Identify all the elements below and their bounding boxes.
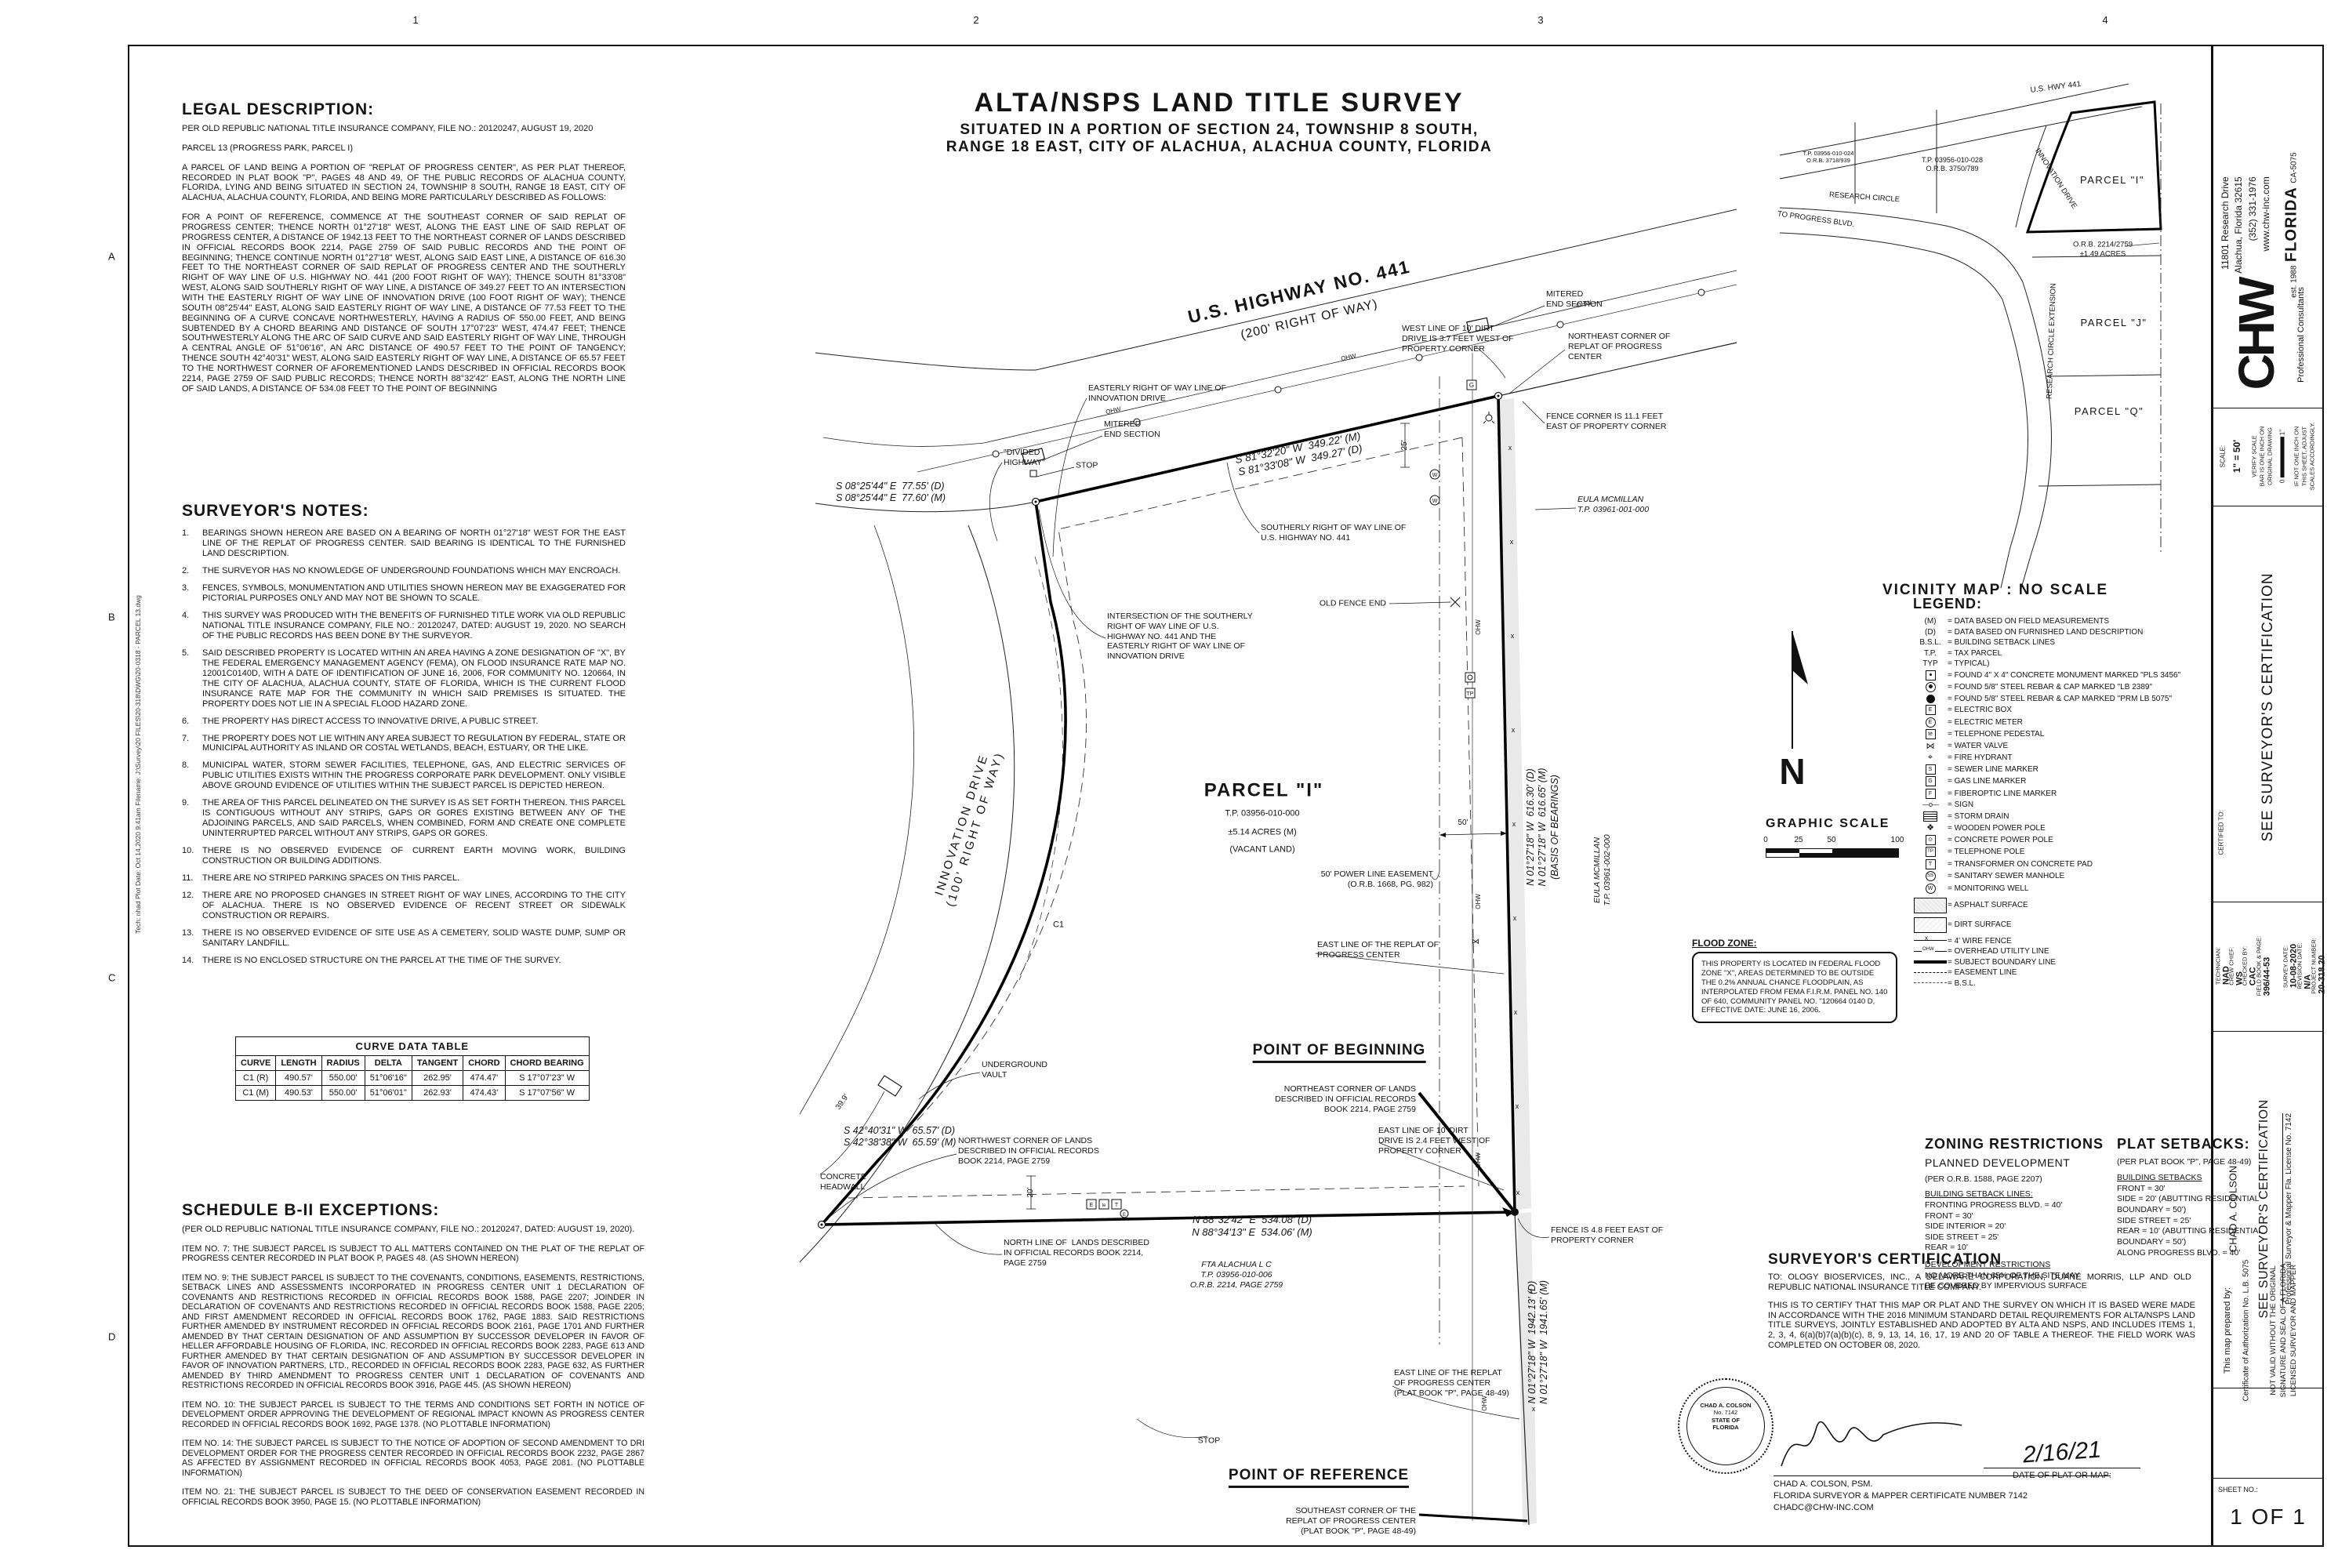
- curve-col-header: CHORD BEARING: [505, 1056, 589, 1071]
- map-label: NORTHEAST CORNER OF LANDS DESCRIBED IN O…: [1275, 1084, 1416, 1114]
- grid-letter: A: [108, 251, 115, 263]
- legend-item: S= SEWER LINE MARKER: [1913, 764, 2209, 775]
- legend-item: T= TRANSFORMER ON CONCRETE PAD: [1913, 859, 2209, 869]
- map-label: EAST LINE OF THE REPLAT OF PROGRESS CENT…: [1394, 1368, 1509, 1398]
- grid-numbers: 1234: [0, 14, 2338, 38]
- legend-item: W= MONITORING WELL: [1913, 884, 2209, 894]
- legend-item: B.S.L.= BUILDING SETBACK LINES: [1913, 638, 2209, 647]
- fiber-icon: F: [1913, 789, 1948, 799]
- map-label: INNOVATION DRIVE (100' RIGHT OF WAY): [931, 746, 1008, 909]
- zoning-setback-line: FRONT = 30': [1925, 1211, 2109, 1222]
- rebar2-icon: [1913, 695, 1948, 703]
- map-label: PARCEL "I": [1204, 779, 1324, 801]
- map-label: FENCE CORNER IS 11.1 FEET EAST OF PROPER…: [1546, 412, 1666, 432]
- surveyors-certification: SURVEYOR'S CERTIFICATION TO: OLOGY BIOSE…: [1768, 1251, 2209, 1351]
- gas-icon: G: [1913, 776, 1948, 786]
- map-label: ±5.14 ACRES (M): [1228, 827, 1296, 837]
- surveyor-note: 14.THERE IS NO ENCLOSED STRUCTURE ON THE…: [182, 956, 626, 966]
- north-arrow: N: [1773, 623, 1821, 792]
- legend-item: ❖= WOODEN POWER POLE: [1913, 823, 2209, 833]
- map-label: CONCRETE HEADWALL: [820, 1172, 866, 1192]
- certifier-name: CHAD A. COLSON, PSM.: [1773, 1479, 2111, 1490]
- fence-icon: x: [1913, 937, 1948, 945]
- surveyors-notes: SURVEYOR'S NOTES: 1.BEARINGS SHOWN HEREO…: [182, 502, 626, 973]
- plat-date: 2/16/21 DATE OF PLAT OR MAP:: [1984, 1439, 2140, 1480]
- surveyor-note: 4.THIS SURVEY WAS PRODUCED WITH THE BENE…: [182, 611, 626, 641]
- wv-icon: ⋈: [1913, 742, 1948, 751]
- map-label: MITERED END SECTION: [1104, 419, 1160, 440]
- title-line1: ALTA/NSPS LAND TITLE SURVEY: [815, 88, 1623, 118]
- sign-icon: —o—: [1913, 801, 1948, 809]
- xfmr-icon: T: [1913, 859, 1948, 869]
- map-label: FTA ALACHUA L C T.P. 03956-010-006 O.R.B…: [1190, 1260, 1283, 1290]
- certification-body: THIS IS TO CERTIFY THAT THIS MAP OR PLAT…: [1768, 1301, 2195, 1351]
- curve-col-header: TANGENT: [412, 1056, 463, 1071]
- legend-item: = B.S.L.: [1913, 979, 2209, 988]
- legal-description: LEGAL DESCRIPTION: PER OLD REPUBLIC NATI…: [182, 100, 626, 394]
- ease-icon: [1913, 969, 1948, 977]
- legend-item: = ASPHALT SURFACE: [1913, 898, 2209, 913]
- legal-description-p2: FOR A POINT OF REFERENCE, COMMENCE AT TH…: [182, 212, 626, 394]
- ohw-icon: OHW: [1913, 948, 1948, 956]
- tpole-icon: TP: [1913, 847, 1948, 857]
- legal-description-heading: LEGAL DESCRIPTION:: [182, 100, 626, 119]
- certification-to: TO: OLOGY BIOSERVICES, INC., A DELAWARE …: [1768, 1272, 2191, 1293]
- seal-no: No. 7142: [1687, 1409, 1764, 1416]
- txt-icon: (M): [1913, 617, 1948, 626]
- zoning-setback-line: FRONTING PROGRESS BLVD. = 40': [1925, 1200, 2109, 1211]
- wpole-icon: ❖: [1913, 823, 1948, 833]
- legend-item: x= 4' WIRE FENCE: [1913, 937, 2209, 946]
- schedule-item: ITEM NO. 14: THE SUBJECT PARCEL IS SUBJE…: [182, 1439, 644, 1478]
- grid-number: 3: [1537, 14, 1543, 26]
- surveyor-note: 6.THE PROPERTY HAS DIRECT ACCESS TO INNO…: [182, 717, 626, 727]
- grid-letter: D: [108, 1331, 115, 1343]
- schedule-item: ITEM NO. 9: THE SUBJECT PARCEL IS SUBJEC…: [182, 1273, 644, 1391]
- legend-item: T.P.= TAX PARCEL: [1913, 649, 2209, 658]
- surveyor-note: 1.BEARINGS SHOWN HEREON ARE BASED ON A B…: [182, 528, 626, 559]
- map-label: N 88°32'42" E 534.08' (D) N 88°34'13" E …: [1192, 1214, 1312, 1239]
- ebox-icon: E: [1913, 705, 1948, 715]
- hyd-icon: ⌖: [1913, 753, 1948, 762]
- map-label: STOP: [1198, 1436, 1220, 1446]
- legend-item: (M)= DATA BASED ON FIELD MEASUREMENTS: [1913, 617, 2209, 626]
- map-label: S 42°40'31" W 65.57' (D) S 42°38'38" W 6…: [844, 1125, 956, 1149]
- ssmh-icon: SS: [1913, 871, 1948, 881]
- scale-tick: 0: [1763, 836, 1768, 844]
- surveyor-note: 9.THE AREA OF THIS PARCEL DELINEATED ON …: [182, 798, 626, 839]
- surveyor-note: 7.THE PROPERTY DOES NOT LIE WITHIN ANY A…: [182, 734, 626, 754]
- map-label: NORTH LINE OF LANDS DESCRIBED IN OFFICIA…: [1004, 1238, 1149, 1268]
- map-label: EULA MCMILLAN T.P. 03961-002-000: [1592, 834, 1613, 906]
- dirt-icon: [1913, 917, 1948, 933]
- map-label: TO PROGRESS BLVD.: [1777, 209, 1855, 229]
- surveyor-note: 13.THERE IS NO OBSERVED EVIDENCE OF SITE…: [182, 928, 626, 949]
- map-label: 39.9': [834, 1093, 851, 1112]
- map-label: NORTHWEST CORNER OF LANDS DESCRIBED IN O…: [958, 1136, 1099, 1166]
- legend-item: ⊙= CONCRETE POWER POLE: [1913, 835, 2209, 845]
- surveyor-signature: [1773, 1411, 2009, 1474]
- legend-item: E= ELECTRIC METER: [1913, 717, 2209, 728]
- legend-item: ⋈= WATER VALVE: [1913, 742, 2209, 751]
- schedule-item: ITEM NO. 7: THE SUBJECT PARCEL IS SUBJEC…: [182, 1244, 644, 1264]
- map-label: POINT OF REFERENCE: [1229, 1466, 1409, 1488]
- vicinity-map: U.S. HWY 441T.P. 03956-010-024 O.R.B. 37…: [1780, 47, 2211, 604]
- scale-tick: 50: [1827, 836, 1835, 844]
- seal-state: STATE OF FLORIDA: [1687, 1417, 1764, 1432]
- flood-zone-heading: FLOOD ZONE:: [1692, 938, 1897, 949]
- survey-map: G TP W W ⋈ E te T E xxx xxx xxx xx U.S. …: [800, 118, 1780, 1529]
- graphic-scale-title: GRAPHIC SCALE: [1766, 817, 1915, 831]
- zoning-heading: ZONING RESTRICTIONS: [1925, 1135, 2109, 1153]
- schedule-item: ITEM NO. 21: THE SUBJECT PARCEL IS SUBJE…: [182, 1487, 644, 1507]
- curve-col-header: CURVE: [236, 1056, 276, 1071]
- legal-description-parcel: PARCEL 13 (PROGRESS PARK, PARCEL I): [182, 143, 626, 154]
- map-label: OLD FENCE END: [1320, 599, 1386, 609]
- flood-zone-note: THIS PROPERTY IS LOCATED IN FEDERAL FLOO…: [1692, 952, 1897, 1023]
- zoning-per: (PER O.R.B. 1588, PAGE 2207): [1925, 1174, 2109, 1185]
- curve-data-table: CURVE DATA TABLE CURVELENGTHRADIUSDELTAT…: [235, 1036, 590, 1101]
- txt-icon: B.S.L.: [1913, 638, 1948, 647]
- map-label: T.P. 03956-010-024 O.R.B. 3718/939: [1803, 150, 1854, 164]
- sheet-no-label: SHEET NO.:: [2218, 1486, 2258, 1494]
- legend-item: = SUBJECT BOUNDARY LINE: [1913, 958, 2209, 967]
- surveyor-note: 3.FENCES, SYMBOLS, MONUMENTATION AND UTI…: [182, 583, 626, 604]
- mon-icon: [1913, 670, 1948, 681]
- schedule-item: ITEM NO. 10: THE SUBJECT PARCEL IS SUBJE…: [182, 1400, 644, 1430]
- map-label: U.S. HWY 441: [2030, 80, 2082, 96]
- map-label: C1: [1053, 920, 1064, 930]
- map-label: OHW: [1475, 619, 1483, 635]
- signature-name-block: CHAD A. COLSON, PSM. FLORIDA SURVEYOR & …: [1773, 1475, 2111, 1514]
- map-label: NORTHEAST CORNER OF REPLAT OF PROGRESS C…: [1568, 332, 1670, 361]
- surveyors-notes-heading: SURVEYOR'S NOTES:: [182, 502, 626, 521]
- legend-item: TP= TELEPHONE POLE: [1913, 847, 2209, 857]
- curve-row: C1 (R)490.57'550.00'51°06'16"262.95'474.…: [236, 1071, 590, 1086]
- grid-number: 4: [2102, 14, 2107, 26]
- legend-item: = FOUND 5/8" STEEL REBAR & CAP MARKED "P…: [1913, 695, 2209, 703]
- legend-item: E= ELECTRIC BOX: [1913, 705, 2209, 715]
- legend-item: F= FIBEROPTIC LINE MARKER: [1913, 789, 2209, 799]
- map-label: 50': [1458, 818, 1468, 828]
- map-label: S 08°25'44" E 77.55' (D) S 08°25'44" E 7…: [836, 481, 946, 505]
- map-label: RESEARCH CIRCLE: [1829, 191, 1901, 205]
- schedule-heading: SCHEDULE B-II EXCEPTIONS:: [182, 1201, 644, 1220]
- map-label: WEST LINE OF 10' DIRT DRIVE IS 3.7 FEET …: [1402, 324, 1514, 354]
- map-label: T.P. 03956-010-000: [1225, 808, 1299, 818]
- map-label: INNOVATION DRIVE: [2033, 147, 2078, 210]
- curve-col-header: RADIUS: [321, 1056, 365, 1071]
- well-icon: W: [1913, 884, 1948, 894]
- legend-item: = DIRT SURFACE: [1913, 917, 2209, 933]
- map-label: FENCE IS 4.8 FEET EAST OF PROPERTY CORNE…: [1551, 1225, 1663, 1246]
- map-label: UNDERGROUND VAULT: [982, 1060, 1047, 1080]
- map-label: EAST LINE OF 10' DIRT DRIVE IS 2.4 FEET …: [1378, 1126, 1490, 1156]
- grid-letters: ABCD: [108, 0, 132, 1568]
- txt-icon: TYP: [1913, 659, 1948, 668]
- certification-heading: SURVEYOR'S CERTIFICATION: [1768, 1251, 2209, 1269]
- legend-item: te= TELEPHONE PEDESTAL: [1913, 729, 2209, 739]
- map-label: T.P. 03956-010-028 O.R.B. 3750/789: [1922, 156, 1983, 173]
- surveyor-note: 2.THE SURVEYOR HAS NO KNOWLEDGE OF UNDER…: [182, 566, 626, 576]
- map-label: PARCEL "Q": [2075, 405, 2144, 418]
- map-label: "DIVIDED HIGHWAY": [1004, 448, 1045, 468]
- map-label: PARCEL "I": [2080, 174, 2144, 187]
- flood-zone: FLOOD ZONE: THIS PROPERTY IS LOCATED IN …: [1692, 938, 1897, 1023]
- map-label: RESEARCH CIRCLE EXTENSION: [2046, 283, 2059, 399]
- title-block: 11801 Research Drive Alachua, Florida 32…: [2213, 45, 2323, 1544]
- legend-item: G= GAS LINE MARKER: [1913, 776, 2209, 786]
- legend: LEGEND: (M)= DATA BASED ON FIELD MEASURE…: [1913, 596, 2209, 989]
- map-label: EASTERLY RIGHT OF WAY LINE OF INNOVATION…: [1088, 383, 1226, 404]
- legend-item: SS= SANITARY SEWER MANHOLE: [1913, 871, 2209, 881]
- zoning-setback-line: SIDE STREET = 25': [1925, 1232, 2109, 1243]
- curve-table-title: CURVE DATA TABLE: [236, 1037, 590, 1056]
- surveyor-note: 10.THERE IS NO OBSERVED EVIDENCE OF CURR…: [182, 846, 626, 866]
- map-label: SOUTHERLY RIGHT OF WAY LINE OF U.S. HIGH…: [1261, 523, 1406, 543]
- bound-icon: [1913, 958, 1948, 966]
- surveyor-note: 5.SAID DESCRIBED PROPERTY IS LOCATED WIT…: [182, 648, 626, 710]
- scale-tick: 25: [1794, 836, 1803, 844]
- legend-item: = EASEMENT LINE: [1913, 968, 2209, 977]
- grid-letter: C: [108, 972, 115, 984]
- certifier-email: CHADC@CHW-INC.COM: [1773, 1502, 2111, 1514]
- legend-item: —o—= SIGN: [1913, 800, 2209, 809]
- curve-row: C1 (M)490.53'550.00'51°06'01"262.93'474.…: [236, 1086, 590, 1101]
- surveyor-note: 11.THERE ARE NO STRIPED PARKING SPACES O…: [182, 873, 626, 884]
- asphalt-icon: [1913, 898, 1948, 913]
- storm-icon: [1913, 811, 1948, 822]
- map-label: N 01°27'18" W 1942.13' (D) N 01°27'18" W…: [1527, 1280, 1551, 1404]
- legend-item: OHW= OVERHEAD UTILITY LINE: [1913, 947, 2209, 956]
- certifier-license: FLORIDA SURVEYOR & MAPPER CERTIFICATE NU…: [1773, 1490, 2111, 1502]
- map-label: (VACANT LAND): [1229, 844, 1294, 855]
- map-label: STOP: [1076, 461, 1098, 471]
- seal-name: CHAD A. COLSON: [1687, 1402, 1764, 1409]
- tped-icon: te: [1913, 729, 1948, 739]
- legend-item: ⌖= FIRE HYDRANT: [1913, 753, 2209, 762]
- north-arrow-n: N: [1779, 751, 1805, 792]
- legend-item: = FOUND 4" X 4" CONCRETE MONUMENT MARKED…: [1913, 670, 2209, 681]
- txt-icon: T.P.: [1913, 649, 1948, 658]
- map-label: 50' POWER LINE EASEMENT (O.R.B. 1668, PG…: [1321, 869, 1433, 890]
- survey-sheet: 1234 ABCD Tech: nhad Plot Date: Oct 14,2…: [0, 0, 2338, 1568]
- map-label: 25': [1400, 440, 1410, 450]
- map-label: N 01°27'18" W 616.30' (D) N 01°27'18" W …: [1525, 768, 1561, 886]
- bsl-icon: [1913, 979, 1948, 987]
- legend-item: = FOUND 5/8" STEEL REBAR & CAP MARKED "L…: [1913, 682, 2209, 692]
- zoning-bsl-heading: BUILDING SETBACK LINES:: [1925, 1189, 2109, 1200]
- map-label: S 81°32'20" W 349.22' (M) S 81°33'08" W …: [1234, 430, 1364, 479]
- grid-letter: B: [108, 612, 115, 623]
- scale-tick: 100: [1891, 836, 1904, 844]
- map-label: OHW: [1475, 894, 1483, 909]
- rebar1-icon: [1913, 682, 1948, 692]
- zoning-setback-line: SIDE INTERIOR = 20': [1925, 1221, 2109, 1232]
- curve-col-header: LENGTH: [276, 1056, 321, 1071]
- surveyor-seal: CHAD A. COLSON No. 7142 STATE OF FLORIDA: [1678, 1378, 1773, 1474]
- map-label: OHW: [1340, 352, 1356, 363]
- zoning-sub: PLANNED DEVELOPMENT: [1925, 1156, 2109, 1170]
- surveyor-note: 8.MUNICIPAL WATER, STORM SEWER FACILITIE…: [182, 760, 626, 791]
- legend-item: (D)= DATA BASED ON FURNISHED LAND DESCRI…: [1913, 628, 2209, 637]
- company-state: FLORIDA: [2283, 187, 2300, 262]
- map-label: O.R.B. 2214/2759 ±1.49 ACRES: [2073, 240, 2133, 258]
- graphic-scale-bar: [1766, 848, 1899, 858]
- map-label: EULA MCMILLAN T.P. 03961-001-000: [1577, 495, 1649, 515]
- map-label: POINT OF BEGINNING: [1253, 1041, 1426, 1063]
- legal-description-intro: PER OLD REPUBLIC NATIONAL TITLE INSURANC…: [182, 124, 626, 134]
- emeter-icon: E: [1913, 717, 1948, 728]
- map-label: OHW: [1105, 405, 1121, 416]
- map-label: SOUTHEAST CORNER OF THE REPLAT OF PROGRE…: [1286, 1506, 1416, 1536]
- sewer-icon: S: [1913, 764, 1948, 775]
- schedule-b2: SCHEDULE B-II EXCEPTIONS: (PER OLD REPUB…: [182, 1201, 644, 1516]
- grid-number: 1: [412, 14, 418, 26]
- map-label: EAST LINE OF THE REPLAT OF PROGRESS CENT…: [1317, 940, 1439, 960]
- legend-item: = STORM DRAIN: [1913, 811, 2209, 822]
- legal-description-p1: A PARCEL OF LAND BEING A PORTION OF "REP…: [182, 163, 626, 203]
- map-label: MITERED END SECTION: [1546, 289, 1603, 310]
- sheet-no-value: 1 OF 1: [2213, 1504, 2323, 1530]
- company-ca: CA-5075: [2290, 152, 2299, 183]
- legend-heading: LEGEND:: [1913, 596, 2209, 612]
- txt-icon: (D): [1913, 628, 1948, 637]
- curve-col-header: CHORD: [463, 1056, 505, 1071]
- legend-item: TYP= TYPICAL): [1913, 659, 2209, 668]
- graphic-scale: GRAPHIC SCALE 02550100: [1766, 817, 1915, 858]
- schedule-intro: (PER OLD REPUBLIC NATIONAL TITLE INSURAN…: [182, 1225, 644, 1235]
- map-label: 20': [1026, 1187, 1036, 1197]
- surveyor-note: 12.THERE ARE NO PROPOSED CHANGES IN STRE…: [182, 891, 626, 921]
- grid-number: 2: [973, 14, 978, 26]
- plat-date-value: 2/16/21: [1983, 1434, 2141, 1472]
- map-label: PARCEL "J": [2081, 317, 2147, 329]
- cpole-icon: ⊙: [1913, 835, 1948, 845]
- map-label: INTERSECTION OF THE SOUTHERLY RIGHT OF W…: [1107, 612, 1253, 662]
- curve-col-header: DELTA: [365, 1056, 412, 1071]
